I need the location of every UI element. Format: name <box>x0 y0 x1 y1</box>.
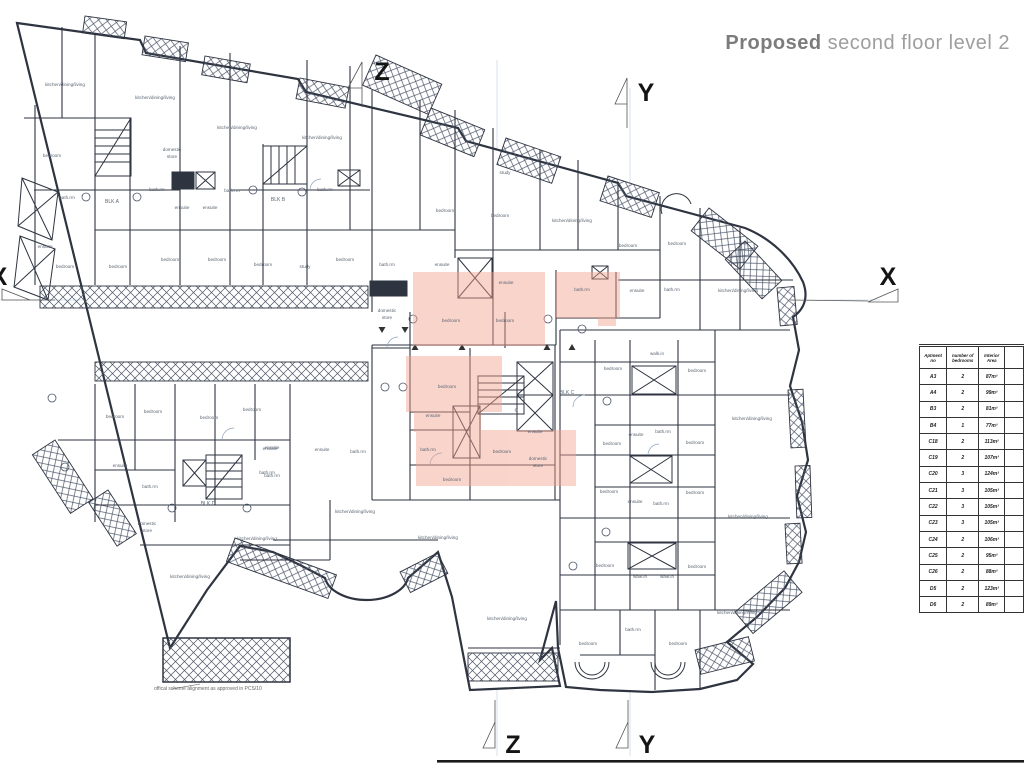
room-label: kitchen/dining/living <box>335 509 375 514</box>
room-label: walk.in <box>650 351 664 356</box>
room-label: ensuite <box>499 280 514 285</box>
room-label: bath.rm <box>574 287 590 292</box>
drawing-title-regular: second floor level 2 <box>822 32 1010 54</box>
room-label: bedroom <box>619 243 637 248</box>
apartment-row: B3281m² <box>920 401 1024 417</box>
room-label: bedroom <box>491 213 509 218</box>
room-label: bedroom <box>493 449 511 454</box>
room-label: bedroom <box>688 368 706 373</box>
table-header-row: Aptment nonumber of bedroomsInterior Are… <box>920 346 1024 369</box>
room-label: bedroom <box>438 384 456 389</box>
room-label: bedroom <box>669 641 687 646</box>
room-label: ensuite <box>628 499 643 504</box>
drawing-sheet: G kitchen/dining/livingkitchen/dining/li… <box>0 0 1024 768</box>
room-label: bedroom <box>336 257 354 262</box>
room-label: bath.rm <box>224 188 240 193</box>
room-label: ensuite <box>315 447 330 452</box>
section-label-y-bottom: Y <box>639 731 656 759</box>
apartment-row: C213105m² <box>920 483 1024 499</box>
room-label: BLK B <box>271 197 286 203</box>
room-label: bedroom <box>254 262 272 267</box>
room-label: bath.rm <box>664 287 680 292</box>
logo-watermark: G <box>515 407 518 413</box>
room-label: store <box>142 528 153 533</box>
room-label: kitchen/dining/living <box>732 416 772 421</box>
room-label: bedroom <box>43 153 61 158</box>
room-label: BLK C <box>560 390 575 396</box>
room-label: bedroom <box>109 264 127 269</box>
room-label: bedroom <box>56 264 74 269</box>
room-label: bedroom <box>688 564 706 569</box>
room-label: bedroom <box>579 641 597 646</box>
section-label-y-top: Y <box>638 79 655 107</box>
room-label: bath.rm <box>317 187 333 192</box>
section-label-x-left: X <box>0 263 8 291</box>
room-label: bedroom <box>604 366 622 371</box>
room-label: bedroom <box>243 407 261 412</box>
apartment-row: C242106m² <box>920 531 1024 547</box>
room-label: ensuite <box>113 463 128 468</box>
room-label: bedroom <box>106 414 124 419</box>
room-label: ensuite <box>435 262 450 267</box>
apartment-row: C26288m² <box>920 564 1024 580</box>
apartment-row: C233105m² <box>920 515 1024 531</box>
room-label: ensuite <box>263 446 278 451</box>
room-label: ensuite <box>203 205 218 210</box>
room-label: bath.rm <box>149 187 165 192</box>
room-label: bedroom <box>200 415 218 420</box>
room-label: bedroom <box>600 489 618 494</box>
room-label: bath.rm <box>59 195 75 200</box>
room-label: BLK D <box>201 501 216 507</box>
scheme-alignment-box <box>163 638 290 689</box>
room-label: domestic <box>378 308 397 313</box>
room-label: bedroom <box>603 441 621 446</box>
room-label: ensuite <box>629 432 644 437</box>
room-label: ensuite <box>426 413 441 418</box>
room-label: kitchen/dining/living <box>45 82 85 87</box>
apartment-row: A4299m² <box>920 385 1024 401</box>
room-label: kitchen/dining/living <box>418 535 458 540</box>
room-label: bath.rm <box>379 262 395 267</box>
room-label: bath.rm <box>420 447 436 452</box>
room-label: bedroom <box>208 257 226 262</box>
section-label-z-top: Z <box>374 58 389 86</box>
apartment-row: C192107m² <box>920 450 1024 466</box>
table-header-cell: Aptment no <box>920 346 947 369</box>
room-label: store <box>382 315 393 320</box>
room-label: study <box>500 170 512 175</box>
room-label: bedroom <box>443 477 461 482</box>
room-label: kitchen/dining/living <box>718 288 758 293</box>
room-label: bedroom <box>442 318 460 323</box>
room-label: bath.rm <box>350 449 366 454</box>
room-label: kitchen/dining/living <box>170 574 210 579</box>
apartment-row: C223105m² <box>920 499 1024 515</box>
scheme-note: offical scheme alignment as approved in … <box>154 686 262 692</box>
section-label-z-bottom: Z <box>505 731 520 759</box>
room-label: domestic <box>163 147 182 152</box>
room-label: store <box>167 154 178 159</box>
room-label: kitchen/dining/living <box>237 536 277 541</box>
room-label: bedroom <box>686 490 704 495</box>
datum-line <box>437 760 1024 763</box>
apartment-row: C182113m² <box>920 434 1024 450</box>
room-label: walk.in <box>633 574 647 579</box>
room-label: study <box>300 264 312 269</box>
apartment-row: D6289m² <box>920 597 1024 613</box>
table-header-cell: number of bedrooms <box>947 346 979 369</box>
room-label: domestic <box>529 456 548 461</box>
room-label: bath.rm <box>653 501 669 506</box>
floor-plan-svg: G kitchen/dining/livingkitchen/dining/li… <box>0 0 1024 768</box>
section-label-x-right: X <box>880 263 897 291</box>
room-label: bedroom <box>596 563 614 568</box>
room-label: bedroom <box>686 440 704 445</box>
room-label: kitchen/dining/living <box>135 95 175 100</box>
room-label: bath.rm <box>142 484 158 489</box>
room-label: ensuite <box>175 205 190 210</box>
room-label: BLK A <box>105 199 120 205</box>
apartment-row: D52123m² <box>920 580 1024 596</box>
apartment-row: C25295m² <box>920 548 1024 564</box>
room-label: bath.rm <box>625 627 641 632</box>
room-label: kitchen/dining/living <box>717 610 757 615</box>
apartment-row: A3287m² <box>920 369 1024 385</box>
room-label: bedroom <box>436 208 454 213</box>
room-label: bedroom <box>161 257 179 262</box>
drawing-title: Proposed second floor level 2 <box>725 32 1010 55</box>
apartment-schedule-table: Aptment nonumber of bedroomsInterior Are… <box>919 344 1024 613</box>
room-label: ensuite <box>630 288 645 293</box>
room-label: kitchen/dining/living <box>552 218 592 223</box>
room-label: bedroom <box>496 318 514 323</box>
room-label: kitchen/dining/living <box>728 514 768 519</box>
room-label: bedroom <box>144 409 162 414</box>
room-label: store <box>533 463 544 468</box>
room-label: walk.in <box>660 574 674 579</box>
apartment-row: C203124m² <box>920 466 1024 482</box>
room-label: kitchen/dining/living <box>487 616 527 621</box>
svg-text:G: G <box>515 407 518 413</box>
room-label: bath.rm <box>655 429 671 434</box>
table-header-cell: Interior Area <box>979 346 1005 369</box>
room-label: domestic <box>138 521 157 526</box>
room-label: bedroom <box>668 241 686 246</box>
room-label: kitchen/dining/living <box>217 125 257 130</box>
room-label: ensuite <box>528 429 543 434</box>
room-label: kitchen/dining/living <box>302 135 342 140</box>
room-label: bath.rm <box>259 470 275 475</box>
apartment-row: B4177m² <box>920 417 1024 433</box>
drawing-title-bold: Proposed <box>725 32 821 54</box>
room-label: ensuite <box>38 244 53 249</box>
